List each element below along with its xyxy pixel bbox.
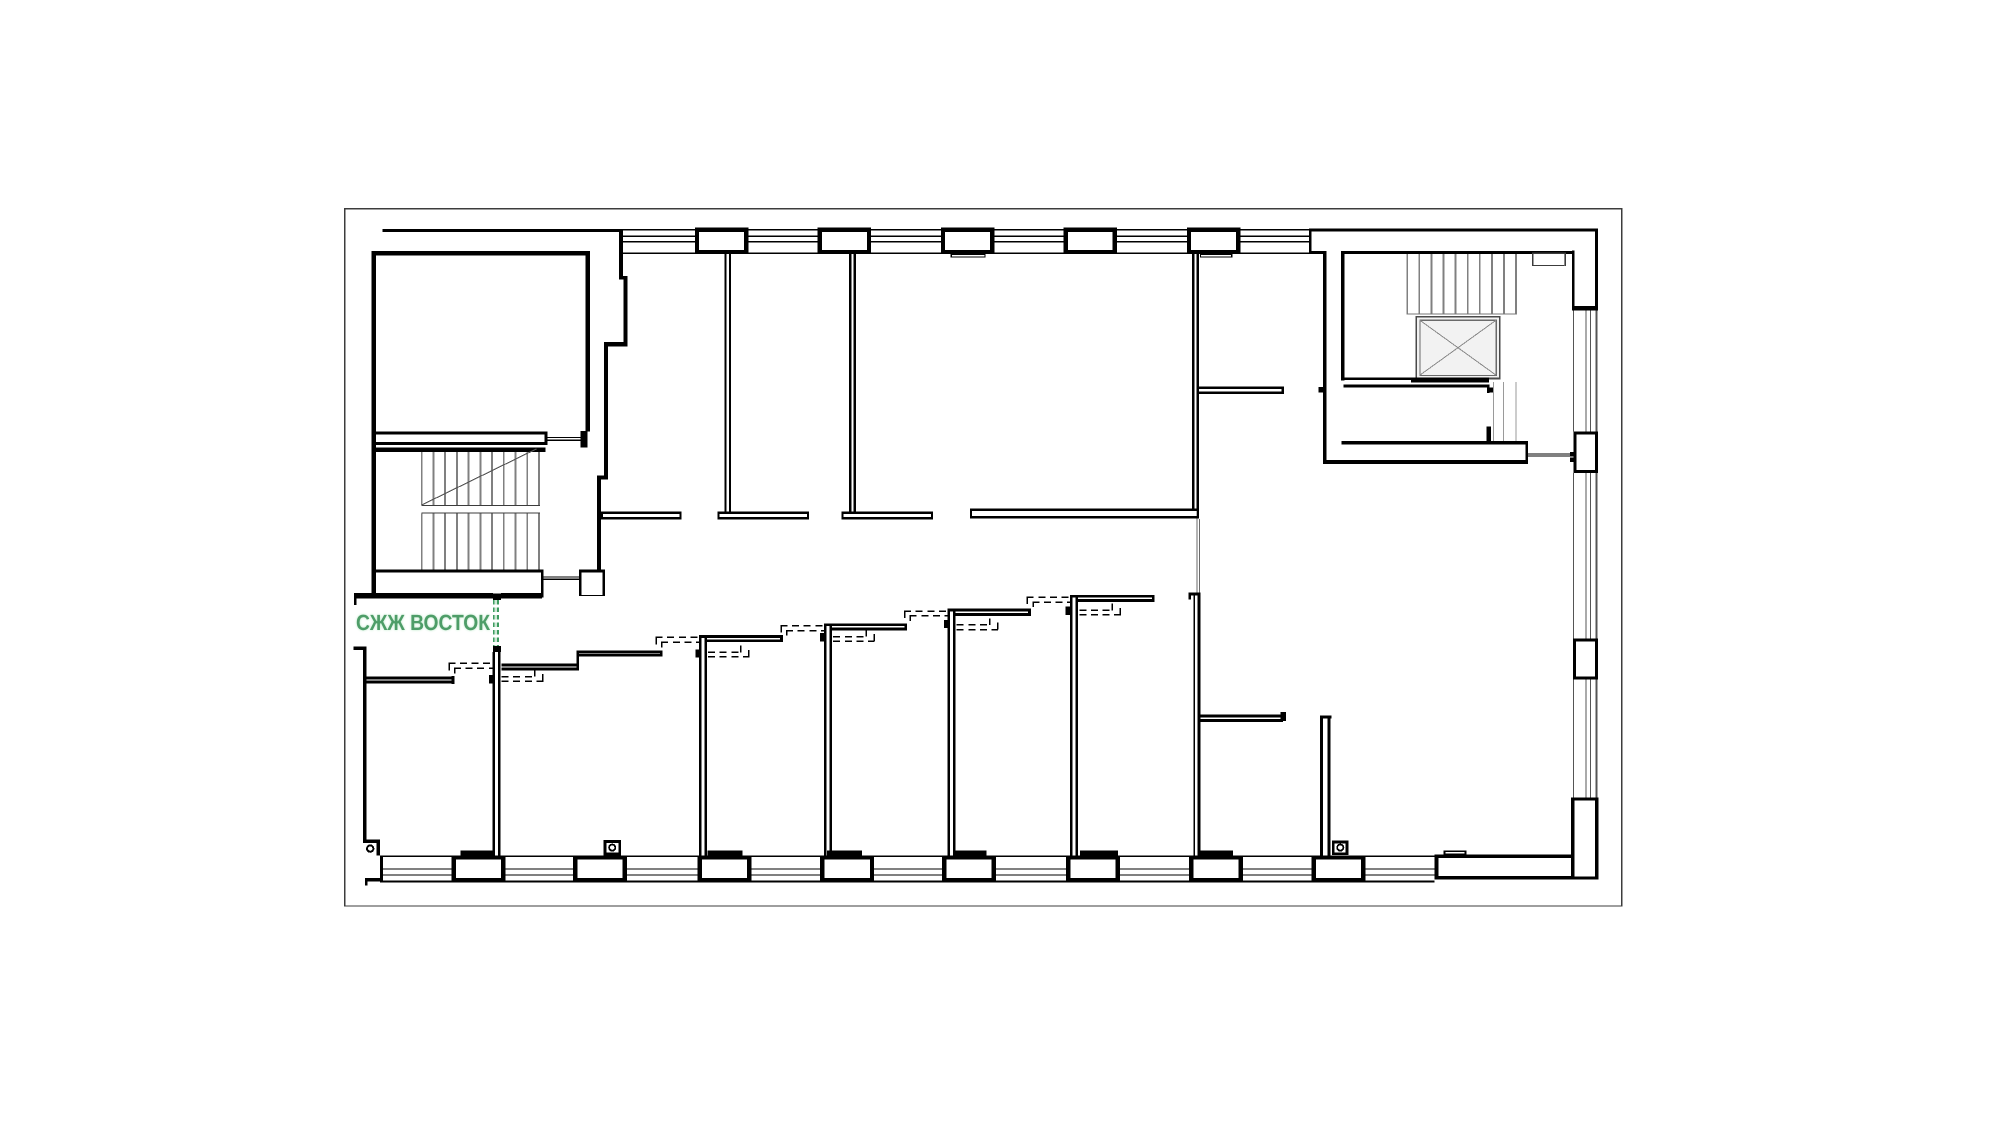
svg-text:СЖЖ ВОСТОК: СЖЖ ВОСТОК [356,610,490,635]
